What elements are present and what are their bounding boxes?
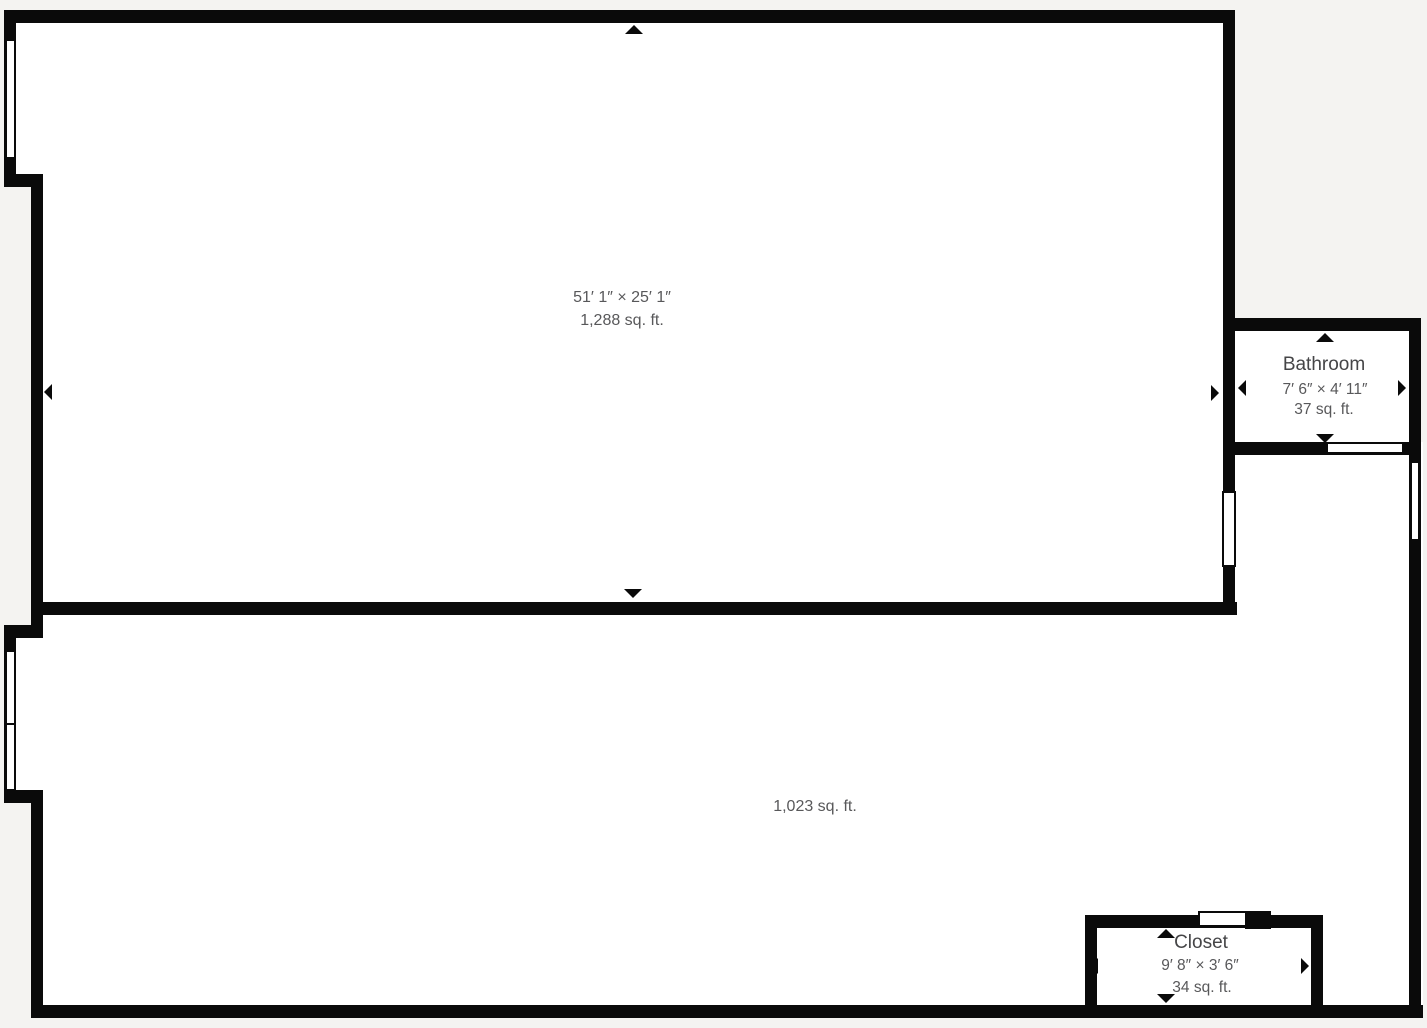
closet-area: 34 sq. ft. (1172, 979, 1231, 997)
bathroom-dimensions: 7′ 6″ × 4′ 11″ (1282, 381, 1367, 399)
lower-area-area: 1,023 sq. ft. (773, 798, 857, 816)
bathroom-label: Bathroom (1283, 354, 1365, 376)
closet-dimensions: 9′ 8″ × 3′ 6″ (1161, 957, 1239, 975)
closet-label: Closet (1174, 932, 1228, 954)
lower-right-column-fill (1223, 442, 1423, 1018)
window-upper-left (5, 39, 16, 159)
dimension-arrow-up-icon (625, 25, 643, 34)
dimension-arrow-left-icon (1238, 380, 1246, 396)
lower-area-fill (31, 602, 1237, 1018)
window-right-wall (1410, 461, 1420, 541)
door-bathroom (1326, 442, 1404, 454)
wall-left-main (31, 174, 43, 638)
dimension-arrow-down-icon (1316, 434, 1334, 443)
dimension-arrow-left-icon (1090, 958, 1098, 974)
closet-sliding-door-leaf (1245, 911, 1271, 929)
wall-closet-right (1311, 915, 1323, 1018)
main-room-area: 1,288 sq. ft. (580, 312, 664, 330)
window-lower-left-2 (5, 723, 16, 791)
wall-top (4, 10, 1235, 23)
wall-right-outer (1409, 318, 1421, 1018)
dimension-arrow-right-icon (1398, 380, 1406, 396)
door-opening-main-right-wall (1222, 491, 1236, 567)
wall-main-bottom (31, 602, 1237, 615)
dimension-arrow-right-icon (1301, 958, 1309, 974)
wall-bathroom-top (1223, 318, 1421, 331)
wall-bottom (31, 1005, 1423, 1018)
dimension-arrow-up-icon (1157, 929, 1175, 938)
bathroom-area: 37 sq. ft. (1294, 401, 1353, 419)
floorplan: 51′ 1″ × 25′ 1″ 1,288 sq. ft. 1,023 sq. … (0, 0, 1427, 1028)
closet-sliding-door-panel (1198, 911, 1247, 927)
main-room-dimensions: 51′ 1″ × 25′ 1″ (573, 289, 671, 307)
window-lower-left-1 (5, 650, 16, 725)
dimension-arrow-right-icon (1211, 385, 1219, 401)
dimension-arrow-left-icon (44, 384, 52, 400)
dimension-arrow-down-icon (624, 589, 642, 598)
dimension-arrow-up-icon (1316, 333, 1334, 342)
wall-left-lower (31, 790, 43, 1018)
